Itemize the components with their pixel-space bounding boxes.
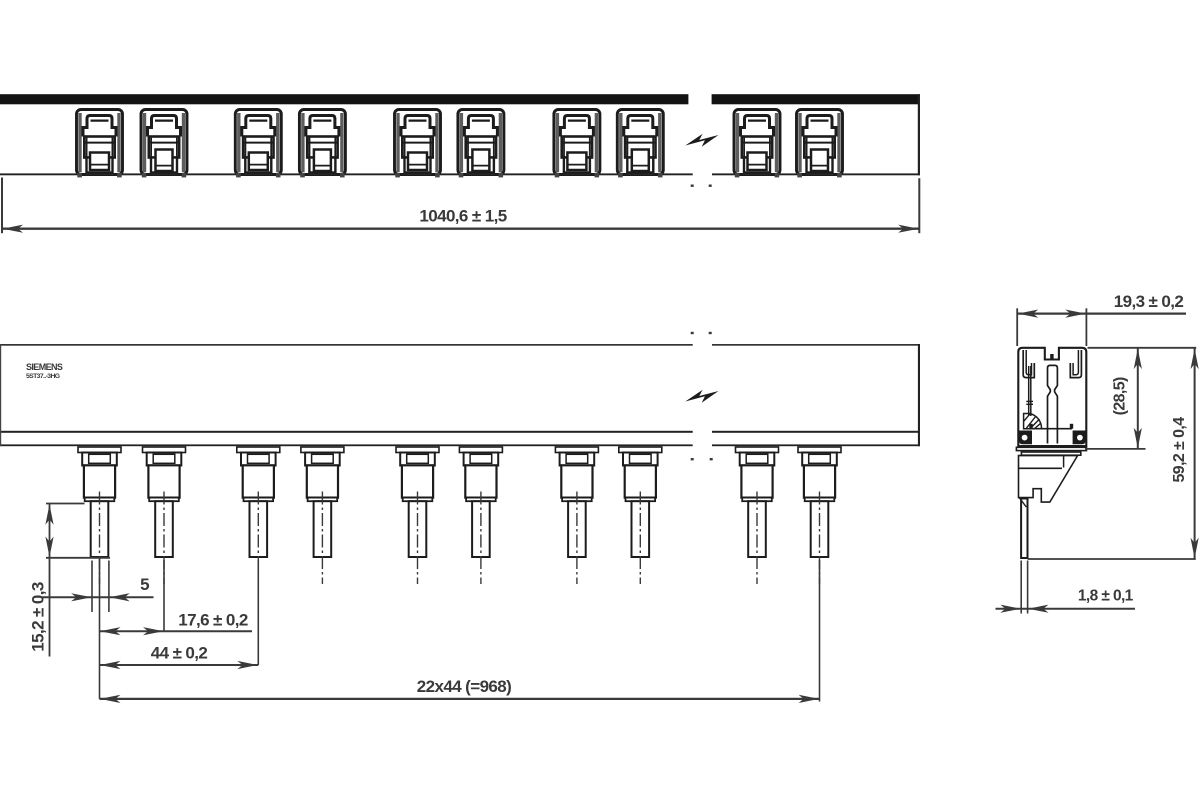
svg-text:5ST37..-3HG: 5ST37..-3HG xyxy=(26,373,60,380)
svg-text:1040,6 ± 1,5: 1040,6 ± 1,5 xyxy=(419,207,506,226)
svg-text:19,3 ± 0,2: 19,3 ± 0,2 xyxy=(1114,292,1184,311)
svg-text:59,2 ± 0,4: 59,2 ± 0,4 xyxy=(1171,417,1188,483)
svg-text:5: 5 xyxy=(140,575,149,594)
svg-text:1,8 ± 0,1: 1,8 ± 0,1 xyxy=(1078,588,1134,605)
svg-text:44 ± 0,2: 44 ± 0,2 xyxy=(151,644,208,663)
svg-text:SIEMENS: SIEMENS xyxy=(26,362,63,372)
svg-text:22x44 (=968): 22x44 (=968) xyxy=(417,677,511,696)
svg-text:(28,5): (28,5) xyxy=(1112,377,1129,415)
svg-text:17,6 ± 0,2: 17,6 ± 0,2 xyxy=(178,611,248,630)
svg-text:15,2 ± 0,3: 15,2 ± 0,3 xyxy=(29,582,48,652)
